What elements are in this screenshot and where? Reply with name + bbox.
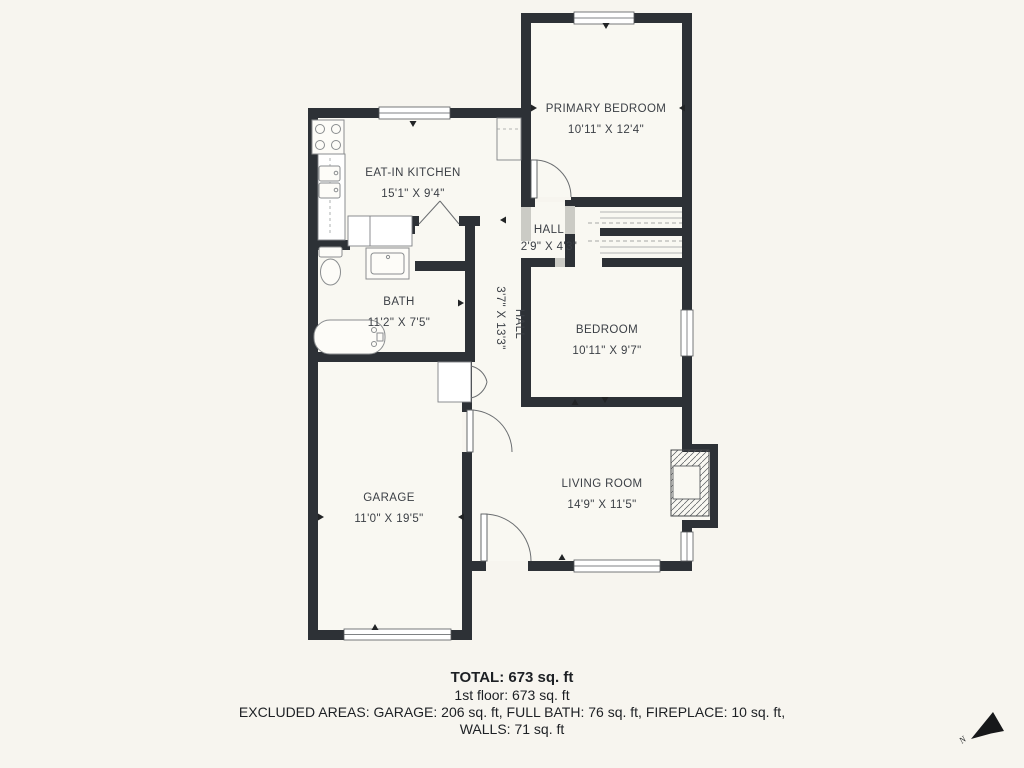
bedroom-window: [681, 310, 693, 356]
area-summary: TOTAL: 673 sq. ft 1st floor: 673 sq. ft …: [0, 669, 1024, 738]
svg-text:3'7" X 13'3": 3'7" X 13'3": [494, 286, 506, 349]
svg-text:GARAGE: GARAGE: [363, 492, 415, 504]
svg-text:BATH: BATH: [383, 296, 414, 308]
fireplace: [671, 450, 709, 516]
svg-text:BEDROOM: BEDROOM: [576, 324, 638, 336]
svg-text:HALL: HALL: [534, 224, 565, 236]
svg-text:10'11" X 12'4": 10'11" X 12'4": [568, 124, 644, 136]
toilet: [319, 247, 342, 285]
floor-plan-svg: EAT-IN KITCHEN 15'1" X 9'4" PRIMARY BEDR…: [0, 0, 1024, 768]
total-area: TOTAL: 673 sq. ft: [0, 669, 1024, 687]
svg-text:14'9" X 11'5": 14'9" X 11'5": [567, 499, 636, 511]
svg-text:HALL: HALL: [513, 309, 525, 340]
svg-text:11'0" X 19'5": 11'0" X 19'5": [354, 513, 423, 525]
svg-text:10'11" X 9'7": 10'11" X 9'7": [572, 345, 641, 357]
living-room-side-window: [681, 532, 693, 561]
floor-plan-page: { "plan": { "rooms": [ {"id":"kitchen","…: [0, 0, 1024, 768]
garage-door: [344, 629, 451, 640]
bathroom-vanity: [366, 248, 409, 279]
excluded-areas: EXCLUDED AREAS: GARAGE: 206 sq. ft, FULL…: [0, 704, 1024, 721]
svg-text:15'1" X 9'4": 15'1" X 9'4": [381, 188, 444, 200]
first-floor-area: 1st floor: 673 sq. ft: [0, 687, 1024, 704]
living-room-front-window: [574, 560, 660, 572]
kitchen-window: [379, 107, 450, 119]
svg-text:LIVING ROOM: LIVING ROOM: [561, 478, 642, 490]
svg-text:11'2" X 7'5": 11'2" X 7'5": [368, 317, 431, 329]
walls-area: WALLS: 71 sq. ft: [0, 721, 1024, 738]
svg-text:PRIMARY BEDROOM: PRIMARY BEDROOM: [546, 103, 667, 115]
stove: [312, 120, 344, 154]
primary-bedroom-window: [574, 12, 634, 24]
svg-text:EAT-IN KITCHEN: EAT-IN KITCHEN: [365, 167, 460, 179]
svg-text:2'9" X 4'3": 2'9" X 4'3": [521, 241, 578, 253]
